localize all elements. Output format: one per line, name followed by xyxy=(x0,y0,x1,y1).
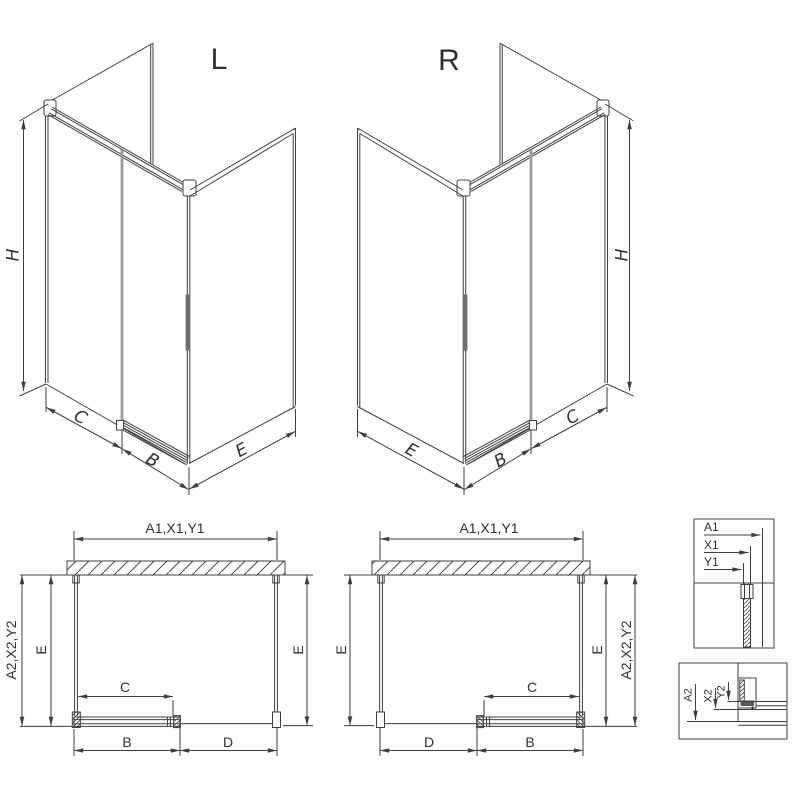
glass-section-strip xyxy=(740,680,745,701)
plan-left-view xyxy=(20,531,313,756)
plan-right-dim-b: B xyxy=(525,735,534,749)
plan-left-dim-a1: A1,X1,Y1 xyxy=(145,521,204,535)
shower-enclosure-technical-drawing: L H C B E R H C B E A1,X1,Y1 A2,X2,Y2 E … xyxy=(0,0,800,800)
iso-right-view xyxy=(358,43,634,495)
plan-right-dim-d: D xyxy=(424,735,434,749)
plan-right-dim-a2: A2,X2,Y2 xyxy=(619,620,633,679)
plan-right-dim-a1: A1,X1,Y1 xyxy=(459,521,518,535)
iso-left-dim-h: H xyxy=(6,249,23,262)
plan-right-dim-e-left: E xyxy=(334,645,348,654)
detail-bottom-dim-y2: Y2 xyxy=(717,685,728,698)
plan-right-view xyxy=(344,531,637,756)
iso-right-dim-h: H xyxy=(615,249,632,262)
plan-left-dim-b: B xyxy=(122,735,131,749)
plan-left-dim-d: D xyxy=(223,735,233,749)
plan-right-dim-e-right: E xyxy=(590,645,604,654)
plan-left-dim-e-right: E xyxy=(291,645,305,654)
wall-hatch-left xyxy=(67,561,285,575)
plan-left-dim-e-left: E xyxy=(34,645,48,654)
iso-left-view xyxy=(20,43,296,495)
wall-hatch-right xyxy=(372,561,590,575)
plan-left-dim-c: C xyxy=(120,680,130,694)
detail-top-dim-a1: A1 xyxy=(704,521,719,533)
iso-right-title: R xyxy=(438,46,460,76)
detail-top-dim-x1: X1 xyxy=(704,539,719,551)
detail-bottom-view xyxy=(679,663,787,739)
plan-right-dim-c: C xyxy=(527,680,537,694)
iso-left-title: L xyxy=(211,45,228,75)
plan-left-dim-a2: A2,X2,Y2 xyxy=(4,620,18,679)
detail-bottom-dim-a2: A2 xyxy=(684,688,695,701)
detail-bottom-dim-x2: X2 xyxy=(704,689,715,702)
detail-top-dim-y1: Y1 xyxy=(704,556,719,568)
